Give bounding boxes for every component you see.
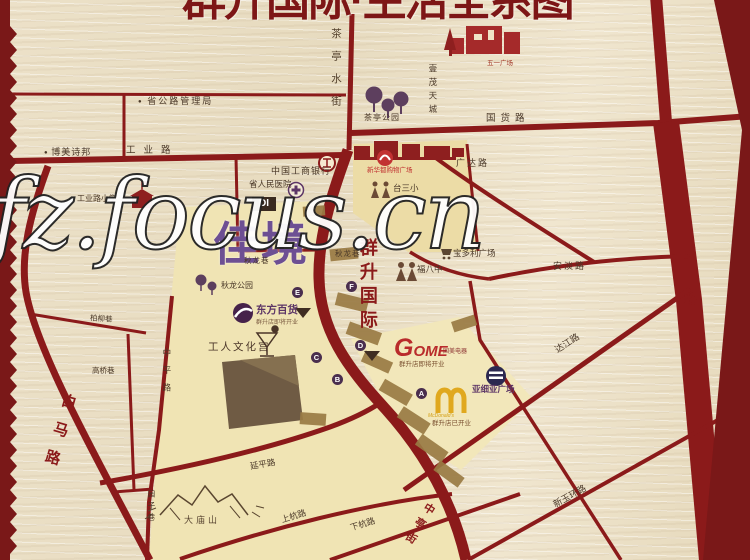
road-guohuolu xyxy=(351,116,750,133)
road-wuyilu-north xyxy=(656,0,666,122)
location-map: 群升国际·生活全系图 省公路管理局 博美诗邦 工业路 工业路小学 茶亭水街 茶亭… xyxy=(0,0,750,560)
label-highway-admin: 省公路管理局 xyxy=(138,97,213,106)
label-gome-sub: 群升店即将开业 xyxy=(399,362,445,369)
label-qiulong-park: 秋龙公园 xyxy=(221,282,253,290)
marker-c: C xyxy=(311,352,322,363)
label-mcdonalds: McDonald's xyxy=(428,414,454,419)
label-gaoqiaoxiang: 高桥巷 xyxy=(92,367,115,375)
map-title: 群升国际·生活全系图 xyxy=(182,0,573,28)
border-left-sawtooth xyxy=(10,26,17,554)
marker-a: A xyxy=(416,388,427,399)
label-chating-park: 茶亭公园 xyxy=(364,114,400,122)
dongfang-logo-icon xyxy=(233,303,253,323)
label-yaxiya: 亚细亚广场 xyxy=(472,385,515,394)
watermark: fz.focus.cn xyxy=(0,158,483,271)
label-yuanzixiang: 园子巷 xyxy=(147,490,155,525)
marker-b: B xyxy=(332,374,343,385)
label-andanlu: 安淡路 xyxy=(553,262,586,271)
label-guohuolu: 国货路 xyxy=(486,114,530,124)
label-bomeishibang: 博美诗邦 xyxy=(44,148,91,157)
label-dongfang-baihuo: 东方百货 xyxy=(256,305,298,316)
label-damiaoshan: 大庙山 xyxy=(184,516,220,525)
label-gongyelu: 工业路 xyxy=(126,146,179,156)
yaxiya-logo-icon xyxy=(486,366,506,386)
wuyi-square-icon xyxy=(444,26,520,56)
border-left-bar xyxy=(0,0,10,560)
label-yimao-tiancheng: 壹茂天城 xyxy=(428,64,437,118)
gome-logo: GOME xyxy=(394,334,448,363)
label-zhongpinglu: 中平路 xyxy=(162,348,171,401)
marker-f: F xyxy=(346,281,357,292)
label-wuyilu: 五一路 xyxy=(682,246,696,315)
label-wenhuagong: 工人文化宫 xyxy=(208,342,271,353)
label-gome-cn: 国美电器 xyxy=(443,349,467,355)
label-mcd-sub: 群升店已开业 xyxy=(432,421,471,428)
marker-e: E xyxy=(292,287,303,298)
road-wuyilu-south xyxy=(666,122,712,560)
label-chating-shuijie: 茶亭水街 xyxy=(330,28,341,118)
label-dongfang-sub: 群升店即将开业 xyxy=(256,320,298,326)
road-chating-shuijie xyxy=(349,14,352,150)
marker-d: D xyxy=(355,340,366,351)
label-wuyi-square: 五一广场 xyxy=(487,61,513,68)
label-bailiuxiang: 柏柳巷 xyxy=(90,314,113,323)
